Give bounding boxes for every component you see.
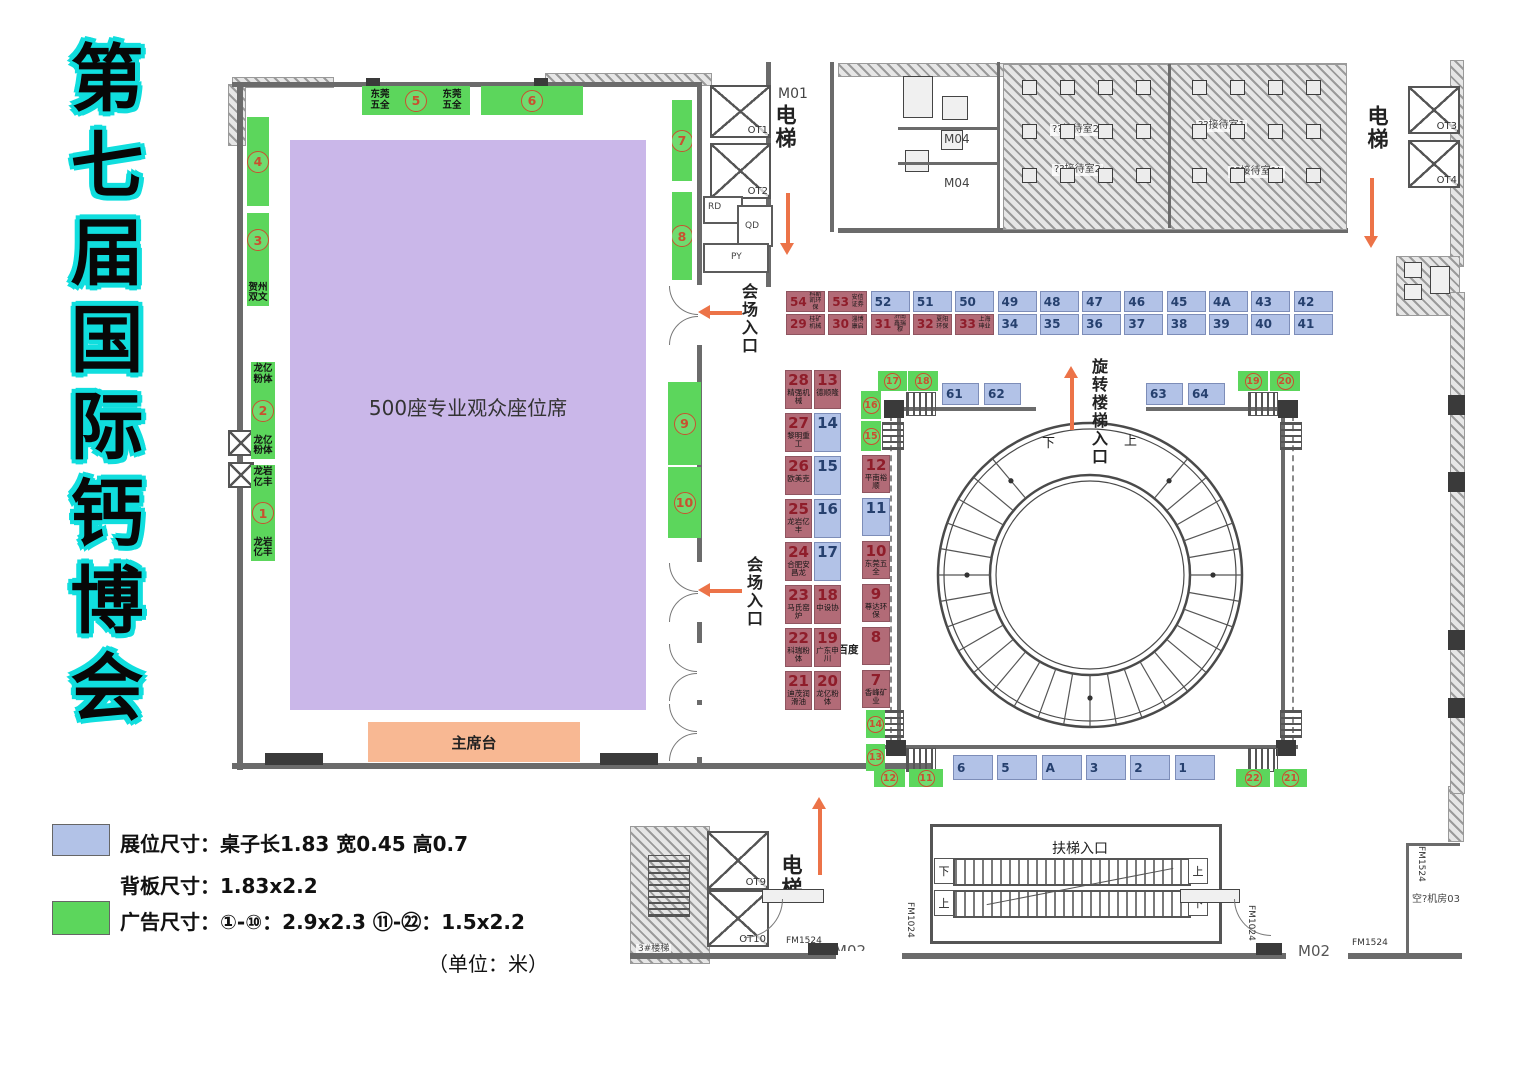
booth-1: 1: [1175, 755, 1215, 780]
booth-61: 61: [942, 383, 979, 405]
booth-3: 3: [1086, 755, 1126, 780]
page-title: 第七届国际钙博会: [50, 40, 150, 785]
sofa-icon: [903, 76, 933, 118]
chair-icon: [1098, 124, 1113, 139]
booth-54: 54科斯凯环保: [786, 291, 825, 312]
booth-A: A: [1042, 755, 1082, 780]
chair-icon: [1306, 80, 1321, 95]
ad-label: 龙岩亿丰: [252, 538, 274, 559]
escalator-direction: 上: [934, 890, 954, 916]
ad-number: 8: [672, 225, 692, 247]
arrow-down-icon: [780, 193, 796, 255]
wall-hatch: [1448, 786, 1464, 842]
chair-icon: [1192, 124, 1207, 139]
door-leaf: [1180, 889, 1240, 903]
door-label: FM1524: [1416, 846, 1426, 882]
legend-unit: （单位：米）: [428, 948, 548, 977]
stair-wall: [884, 745, 1298, 749]
booth-21: 21迪茂润滑油: [785, 671, 812, 710]
ad-label: 龙岩亿丰: [252, 467, 274, 488]
booth-32: 32夏阳环保: [913, 314, 952, 335]
door-arc-icon: [669, 644, 697, 672]
wall-block: [808, 943, 838, 955]
chair-icon: [1268, 168, 1283, 183]
arrow-up-icon: [812, 797, 828, 875]
ad-booth-5: 东莞五全 5 东莞五全: [362, 86, 470, 115]
elevator-ot2: OT2: [710, 143, 771, 199]
ad-label: 贺州双文: [247, 283, 269, 304]
door-label: FM1524: [1352, 938, 1388, 948]
ad-number: 3: [247, 229, 269, 251]
chair-icon: [1060, 124, 1075, 139]
elevator-ot4: OT4: [1408, 140, 1460, 188]
chair-icon: [1306, 168, 1321, 183]
ad-label: 龙亿粉体: [252, 364, 274, 385]
legend-panel-size: 背板尺寸：1.83x2.2: [120, 870, 318, 899]
door-arc-icon: [669, 316, 698, 345]
stairs-icon: [648, 855, 690, 917]
fixture-icon: [1404, 284, 1422, 300]
floor-plan: 第七届国际钙博会 500座专业观众座位席 主席台 东莞五全 5 东莞五全 6 4…: [0, 0, 1527, 1080]
door-arc-icon: [744, 899, 783, 938]
arrow-left-icon: [698, 305, 742, 321]
door-label: FM1024: [905, 902, 915, 938]
column: [1448, 630, 1465, 650]
chair-icon: [1268, 80, 1283, 95]
booth-51: 51: [913, 291, 952, 312]
booth-9: 9尊达环保: [862, 584, 890, 622]
arrow-left-icon: [698, 583, 742, 599]
wall: [997, 62, 1000, 230]
door-label: FM1024: [1246, 905, 1256, 941]
escalator-direction: 上: [1188, 858, 1208, 884]
booth-2: 2: [1130, 755, 1170, 780]
ad-booth-9: 9: [668, 382, 701, 465]
booth-63: 63: [1146, 383, 1183, 405]
ad-booth-6: 6: [481, 86, 583, 115]
ad-booth-1: 龙岩亿丰 1 龙岩亿丰: [251, 465, 275, 561]
stair-core: [884, 400, 904, 418]
booth-20: 20龙亿粉体: [814, 671, 841, 710]
fixture-icon: [1404, 262, 1422, 278]
ad-booth-19: 19: [1238, 371, 1268, 391]
chair-icon: [1060, 80, 1075, 95]
chair-icon: [905, 150, 929, 172]
ad-booth-12: 12: [874, 769, 905, 787]
booth-33: 33上海珅业: [955, 314, 994, 335]
booth-39: 39: [1209, 314, 1248, 335]
booth-46: 46: [1124, 291, 1163, 312]
ad-label: 龙亿粉体: [252, 436, 274, 457]
stair-core: [1276, 740, 1296, 756]
door-arc-icon: [669, 286, 698, 315]
wall-block: [265, 753, 323, 765]
booth-25: 25龙岩亿丰: [785, 499, 812, 538]
booth-37: 37: [1124, 314, 1163, 335]
ad-booth-7: 7: [672, 100, 692, 181]
booth-42: 42: [1294, 291, 1333, 312]
chair-icon: [1136, 124, 1151, 139]
door-arc-icon: [669, 704, 697, 732]
ad-booth-20: 20: [1270, 371, 1300, 391]
escalator-direction: 下: [934, 858, 954, 884]
arrow-down-icon: [1364, 178, 1380, 248]
chair-icon: [1098, 168, 1113, 183]
legend-booth-size: 展位尺寸：桌子长1.83 宽0.45 高0.7: [120, 828, 468, 857]
machine-room-label: 空?机房03: [1412, 890, 1460, 905]
door-arc-icon: [669, 673, 697, 701]
chair-icon: [1022, 124, 1037, 139]
wall: [1406, 843, 1460, 846]
booth-4A: 4A: [1209, 291, 1248, 312]
elevator-ot9: OT9: [707, 831, 769, 890]
wall-dashed: [1292, 415, 1294, 743]
reception-rooms-area: [1003, 64, 1347, 230]
chair-icon: [1022, 80, 1037, 95]
chair-icon: [1098, 80, 1113, 95]
ad-booth-8: 8: [672, 192, 692, 280]
table-icon: [942, 96, 968, 120]
ad-number: 10: [674, 492, 696, 514]
elevator-ot3: OT3: [1408, 86, 1460, 134]
legend-blue-swatch: [52, 824, 110, 856]
booth-7: 7香峰矿业: [862, 670, 890, 708]
stair-core: [882, 422, 904, 450]
ad-number: 1: [252, 502, 274, 524]
booth-27: 27黎明重工: [785, 413, 812, 452]
booth-8: 8: [862, 627, 890, 665]
booth-23: 23马氏窑炉: [785, 585, 812, 624]
booth-64: 64: [1188, 383, 1225, 405]
stair-core: [882, 710, 904, 738]
chair-icon: [1060, 168, 1075, 183]
audience-seating-area: [290, 140, 646, 710]
room-label-m04: M04: [944, 132, 970, 146]
booth-36: 36: [1082, 314, 1121, 335]
stair-core: [886, 740, 906, 756]
reception-label: ??接待室2: [1050, 124, 1101, 136]
legend-green-swatch: [52, 901, 110, 935]
chair-icon: [1022, 168, 1037, 183]
chair-icon: [1306, 124, 1321, 139]
booth-50: 50: [955, 291, 994, 312]
ad-booth-18: 18: [908, 371, 938, 391]
booth-38: 38: [1167, 314, 1206, 335]
stair-wall: [897, 407, 901, 749]
stair-core: [1280, 422, 1302, 450]
wall: [1406, 843, 1409, 955]
column: [1448, 395, 1465, 415]
wall-block: [1256, 943, 1282, 955]
booth-35: 35: [1040, 314, 1079, 335]
stair-core: [1248, 392, 1278, 416]
wall-hatch: [1450, 292, 1465, 794]
room-qd: QD: [737, 205, 773, 247]
chair-icon: [1230, 168, 1245, 183]
ad-number: 2: [252, 400, 274, 422]
door-arc-icon: [669, 563, 698, 592]
booth-43: 43: [1251, 291, 1290, 312]
ad-label: 东莞五全: [369, 90, 391, 111]
spiral-entrance-label: 旋转楼梯入口: [1086, 358, 1110, 466]
booth-40: 40: [1251, 314, 1290, 335]
column: [1448, 698, 1465, 718]
wall-dashed: [890, 415, 892, 743]
ad-label: 东莞五全: [441, 90, 463, 111]
booth-53: 53安信证券: [828, 291, 867, 312]
elevator-label: 电梯: [1362, 105, 1392, 151]
booth-17: 17: [814, 542, 841, 581]
ad-number: 5: [405, 90, 427, 112]
wall: [898, 162, 1000, 165]
booth-31: 31济南鑫瑞穆: [871, 314, 910, 335]
ad-number: 7: [672, 130, 692, 152]
ad-booth-13: 13: [866, 744, 885, 771]
legend-ad-size: 广告尺寸：①-⑩：2.9x2.3 ⑪-㉒：1.5x2.2: [120, 906, 525, 935]
stage: 主席台: [368, 722, 580, 762]
booth-15: 15: [814, 456, 841, 495]
elevator-label: 电梯: [770, 104, 800, 150]
ad-booth-16: 16: [861, 391, 881, 419]
stair-core: [1278, 400, 1298, 418]
booth-5: 5: [997, 755, 1037, 780]
booth-47: 47: [1082, 291, 1121, 312]
ad-booth-4: 4: [247, 117, 269, 206]
stair-core: [1280, 710, 1302, 738]
door-arc-icon: [669, 593, 698, 622]
hall-wall-bottom: [232, 763, 932, 769]
booth-14: 14: [814, 413, 841, 452]
stair-down-label: 下: [1042, 432, 1055, 451]
booth-48: 48: [1040, 291, 1079, 312]
booth-11: 11: [862, 498, 890, 536]
chair-icon: [1230, 124, 1245, 139]
ad-number: 6: [521, 90, 543, 112]
wall: [1168, 64, 1171, 228]
room-label-m02: M02: [1298, 942, 1330, 960]
booth-49: 49: [998, 291, 1037, 312]
chair-icon: [1136, 80, 1151, 95]
ad-booth-10: 10: [668, 467, 701, 538]
wall-block: [600, 753, 658, 765]
stair-up-label: 上: [1124, 430, 1137, 449]
seating-label: 500座专业观众座位席: [290, 392, 646, 421]
ad-number: 4: [247, 151, 269, 173]
room-label-m04: M04: [944, 176, 970, 190]
ad-booth-17: 17: [878, 371, 907, 391]
booth-45: 45: [1167, 291, 1206, 312]
booth-52: 52: [871, 291, 910, 312]
chair-icon: [1192, 80, 1207, 95]
elevator-ot1: OT1: [710, 85, 771, 138]
booth-41: 41: [1294, 314, 1333, 335]
ad-booth-11: 11: [909, 769, 943, 787]
booth-29: 29桂矿机械: [786, 314, 825, 335]
door-gap: [836, 951, 902, 961]
ad-booth-14: 14: [866, 710, 885, 738]
ad-number: 9: [674, 413, 696, 435]
booth-24: 24合肥安昌龙: [785, 542, 812, 581]
ad-booth-3: 3 贺州双文: [247, 213, 269, 306]
entrance-label: 会场入口: [741, 556, 765, 628]
hall-wall-left: [237, 82, 243, 770]
booth-18: 18中设协: [814, 585, 841, 624]
ad-booth-21: 21: [1274, 769, 1307, 787]
room-label-m01: M01: [778, 86, 808, 102]
room-py: PY: [703, 243, 769, 273]
ad-booth-15: 15: [861, 421, 881, 451]
chair-icon: [1230, 80, 1245, 95]
booth-62: 62: [984, 383, 1021, 405]
wall: [830, 62, 834, 232]
booth-13: 13德顺隆: [814, 370, 841, 409]
fixture-icon: [1430, 266, 1450, 294]
wall: [898, 127, 1000, 130]
stair-core: [906, 392, 936, 416]
booth-30: 30淄博康启: [828, 314, 867, 335]
door-arc-icon: [669, 733, 697, 761]
ad-booth-2: 龙亿粉体 2 龙亿粉体: [251, 362, 275, 459]
booth-16: 16: [814, 499, 841, 538]
booth-6: 6: [953, 755, 993, 780]
booth-26: 26欧美克: [785, 456, 812, 495]
booth-22: 22科瑞粉体: [785, 628, 812, 667]
chair-icon: [1268, 124, 1283, 139]
chair-icon: [1192, 168, 1207, 183]
column: [1448, 472, 1465, 492]
arrow-up-icon: [1064, 366, 1080, 430]
escalator-label: 扶梯入口: [1000, 838, 1160, 858]
booth-34: 34: [998, 314, 1037, 335]
booth-10: 10东莞五全: [862, 541, 890, 579]
stair-wall: [1281, 407, 1285, 749]
ad-booth-22: 22: [1236, 769, 1270, 787]
chair-icon: [1136, 168, 1151, 183]
booth-19: 19广东申川: [814, 628, 841, 667]
booth-12: 12平南裕顺: [862, 455, 890, 493]
booth-28: 28精强机械: [785, 370, 812, 409]
